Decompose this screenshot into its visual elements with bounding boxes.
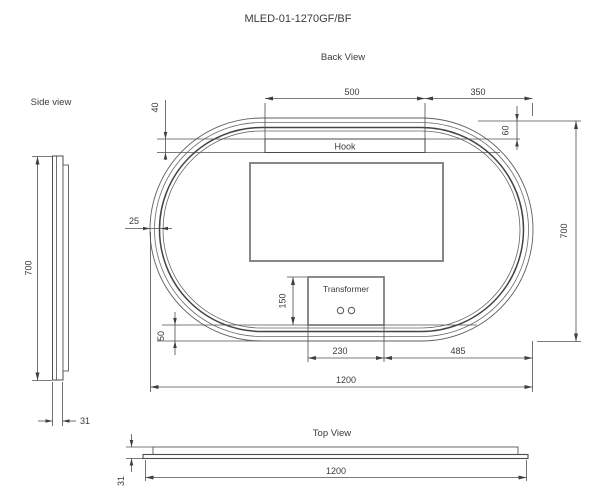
dim-hook-width-label: 500: [344, 87, 359, 97]
dim-hook-height-label: 40: [150, 102, 160, 112]
dim-frame-inset-label: 25: [129, 216, 139, 226]
dim-top-width: 1200: [146, 460, 527, 481]
dim-transformer-height-label: 150: [278, 293, 288, 308]
transformer-label: Transformer: [323, 284, 369, 294]
dim-overall-height: 700: [537, 121, 581, 342]
dim-top-thickness-label: 31: [116, 476, 126, 486]
top-view: 31 1200: [116, 434, 528, 486]
back-view-label: Back View: [321, 52, 365, 63]
back-view: Hook Transformer 500 350: [125, 87, 581, 392]
dim-hook-to-right: 350: [425, 87, 533, 116]
dim-overall-width-label: 1200: [336, 375, 356, 385]
dim-transformer-width-label: 230: [332, 346, 347, 356]
dim-frame-inset: 25: [125, 216, 172, 230]
center-panel-rect: [250, 163, 443, 261]
top-mirror-slab: [143, 455, 528, 459]
side-view-label: Side view: [31, 97, 72, 108]
dim-transformer-to-right-label: 485: [450, 346, 465, 356]
transformer-box: Transformer: [308, 277, 384, 325]
dim-transformer-height: 150: [278, 277, 308, 325]
hook-bar-label: Hook: [334, 142, 356, 152]
dim-overall-height-label: 700: [559, 223, 569, 238]
drawing-sheet: MLED-01-1270GF/BF Back View Side view To…: [0, 0, 600, 503]
hook-bar: Hook: [265, 139, 425, 153]
side-view: 700 31: [24, 156, 91, 426]
top-back-panel: [153, 447, 518, 455]
dim-top-width-label: 1200: [326, 466, 346, 476]
dim-top-to-hook: 60: [478, 106, 581, 150]
dim-top-to-hook-label: 60: [501, 125, 511, 135]
dim-bottom-inset-label: 50: [156, 331, 166, 341]
side-back-panel: [63, 165, 69, 371]
technical-drawing: MLED-01-1270GF/BF Back View Side view To…: [0, 0, 600, 503]
dim-side-thickness-label: 31: [80, 416, 90, 426]
dim-bottom-inset: 50: [156, 312, 177, 355]
dim-side-thickness: 31: [38, 382, 90, 426]
dim-side-height-label: 700: [24, 260, 34, 275]
drawing-title: MLED-01-1270GF/BF: [245, 13, 352, 25]
dim-transformer-width: 230: [308, 325, 384, 362]
side-mirror-slab: [53, 156, 64, 380]
dim-transformer-to-right: 485: [384, 341, 533, 392]
dim-hook-height: 40: [150, 100, 167, 160]
top-view-label: Top View: [313, 428, 352, 439]
dim-top-thickness: 31: [116, 434, 153, 486]
dim-hook-to-right-label: 350: [470, 87, 485, 97]
dim-side-height: 700: [24, 157, 53, 381]
